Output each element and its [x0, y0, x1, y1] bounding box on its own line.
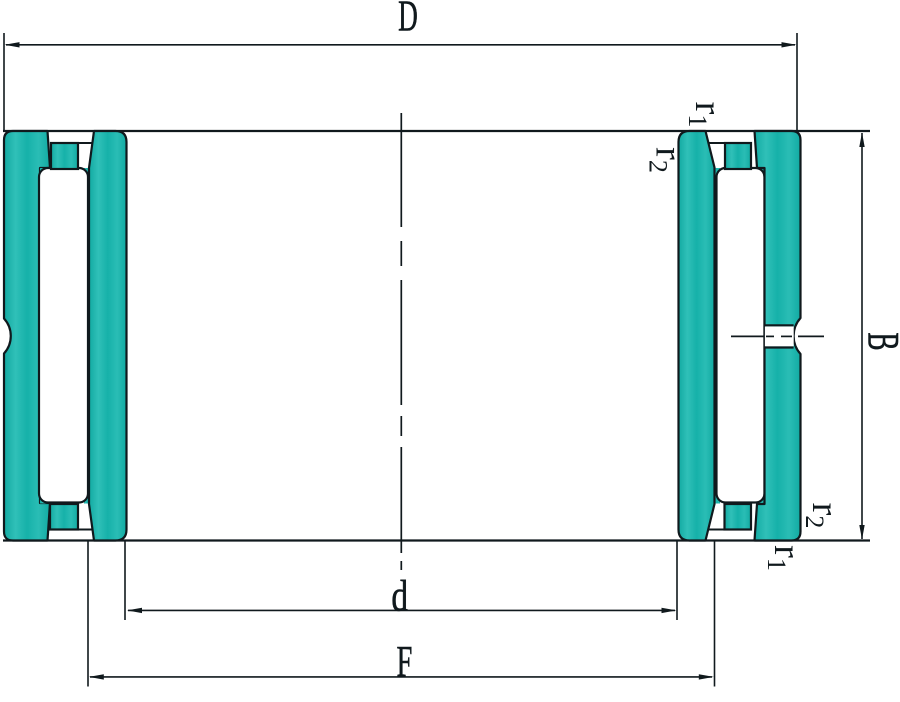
svg-text:B: B — [859, 332, 900, 350]
svg-text:r1: r1 — [762, 545, 808, 571]
svg-text:F: F — [397, 638, 413, 687]
svg-text:r1: r1 — [683, 102, 729, 128]
svg-text:r2: r2 — [800, 503, 846, 529]
svg-text:d: d — [391, 572, 408, 620]
svg-text:D: D — [398, 0, 418, 40]
